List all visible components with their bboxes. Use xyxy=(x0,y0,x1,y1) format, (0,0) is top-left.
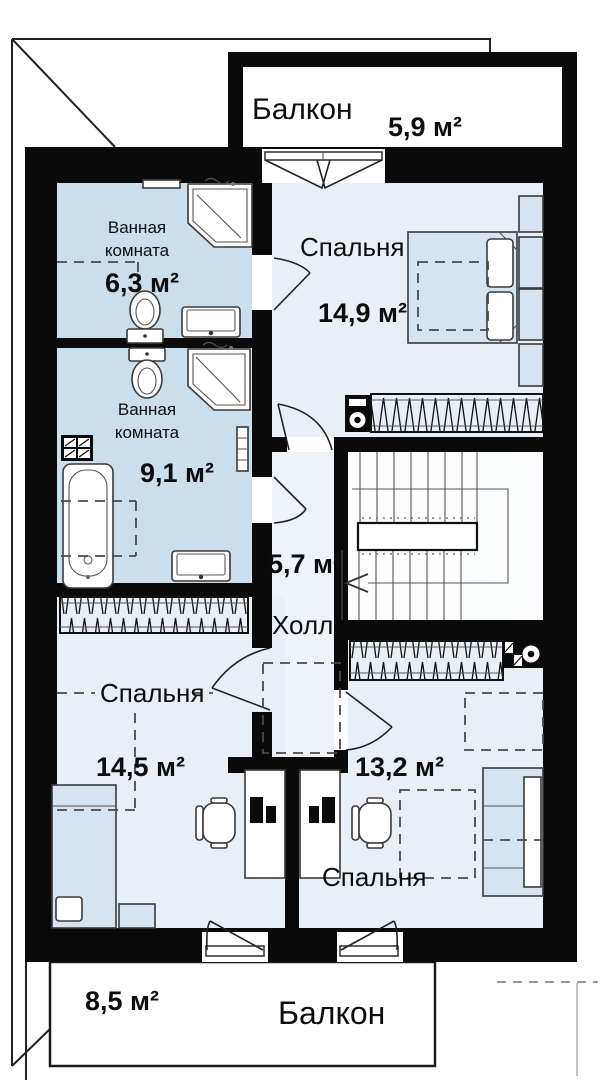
bathroom-top-area: 6,3 м² xyxy=(105,268,179,299)
bathtub-icon xyxy=(63,464,113,588)
hall-area: 5,7 м² xyxy=(268,549,342,580)
sink-bottom-icon xyxy=(172,551,230,581)
towel-radiator-icon xyxy=(237,427,248,471)
nightstand-main-top xyxy=(519,196,543,232)
bathroom-bottom-area: 9,1 м² xyxy=(140,458,214,489)
hall-label: Холл xyxy=(272,610,333,641)
stair-landing-rail xyxy=(358,523,477,550)
bedroom-right-label: Спальня xyxy=(322,862,426,893)
desk-left-icon xyxy=(245,770,285,878)
bed-right-icon xyxy=(483,768,543,896)
nightstand-main-bottom xyxy=(519,344,543,386)
floor-plan: Балкон 5,9 м² Ванная комната 6,3 м² Спал… xyxy=(0,0,602,1080)
washing-machine-icon xyxy=(345,395,370,432)
shelf-icon xyxy=(143,180,180,188)
single-bed-left-icon xyxy=(52,785,116,928)
bedroom-main-area: 14,9 м² xyxy=(318,298,407,329)
double-bed-main-icon xyxy=(408,232,543,343)
balcony-top-area: 5,9 м² xyxy=(388,112,462,143)
toilet-bottom-icon xyxy=(129,348,165,398)
nightstand-left xyxy=(119,904,155,928)
french-balcony-door-top xyxy=(262,149,385,188)
bathroom-bottom-label: Ванная комната xyxy=(98,398,196,445)
vent-grille-icon xyxy=(61,435,93,461)
balcony-top-label: Балкон xyxy=(252,93,353,127)
radiator-bedroom-main xyxy=(371,394,543,432)
balcony-bottom-label: Балкон xyxy=(278,995,385,1032)
sink-top-icon xyxy=(182,307,240,337)
bedroom-left-label: Спальня xyxy=(100,678,204,709)
vent-fan-icon xyxy=(503,640,543,668)
radiator-bedroom-left xyxy=(60,597,248,633)
bathroom-top-label: Ванная комната xyxy=(88,216,186,263)
bedroom-right-area: 13,2 м² xyxy=(355,752,444,783)
bedroom-left-area: 14,5 м² xyxy=(96,752,185,783)
radiator-bedroom-right xyxy=(350,641,503,680)
floor-plan-drawing xyxy=(0,0,602,1080)
balcony-bottom-area: 8,5 м² xyxy=(85,986,159,1017)
bedroom-main-label: Спальня xyxy=(300,232,404,263)
